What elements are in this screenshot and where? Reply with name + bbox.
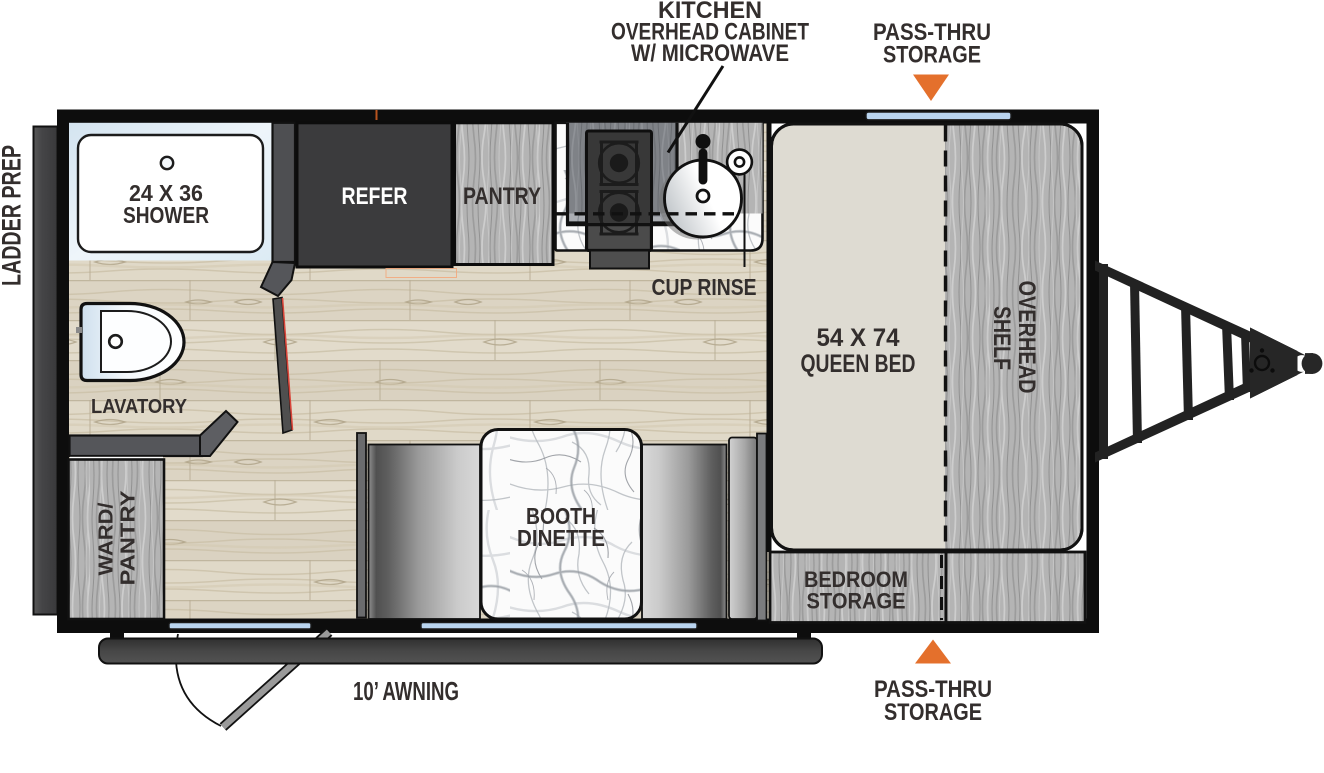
svg-text:LAVATORY: LAVATORY: [91, 396, 188, 418]
svg-text:LADDER PREP: LADDER PREP: [0, 145, 27, 286]
svg-text:QUEEN BED: QUEEN BED: [801, 350, 916, 378]
svg-text:54 X 74: 54 X 74: [817, 324, 900, 352]
svg-text:W/ MICROWAVE: W/ MICROWAVE: [631, 40, 789, 67]
svg-text:PANTRY: PANTRY: [463, 183, 541, 210]
svg-text:PANTRY: PANTRY: [118, 490, 140, 586]
svg-text:DINETTE: DINETTE: [517, 525, 605, 551]
svg-text:OVERHEAD: OVERHEAD: [1013, 281, 1040, 394]
svg-text:WARD/: WARD/: [96, 502, 118, 575]
svg-text:SHOWER: SHOWER: [123, 202, 209, 228]
svg-text:10’ AWNING: 10’ AWNING: [353, 678, 459, 706]
svg-text:SHELF: SHELF: [988, 306, 1015, 370]
svg-text:STORAGE: STORAGE: [884, 699, 982, 726]
svg-text:STORAGE: STORAGE: [807, 589, 906, 614]
svg-text:REFER: REFER: [342, 183, 408, 210]
svg-text:CUP RINSE: CUP RINSE: [652, 274, 757, 300]
svg-text:STORAGE: STORAGE: [883, 42, 981, 69]
